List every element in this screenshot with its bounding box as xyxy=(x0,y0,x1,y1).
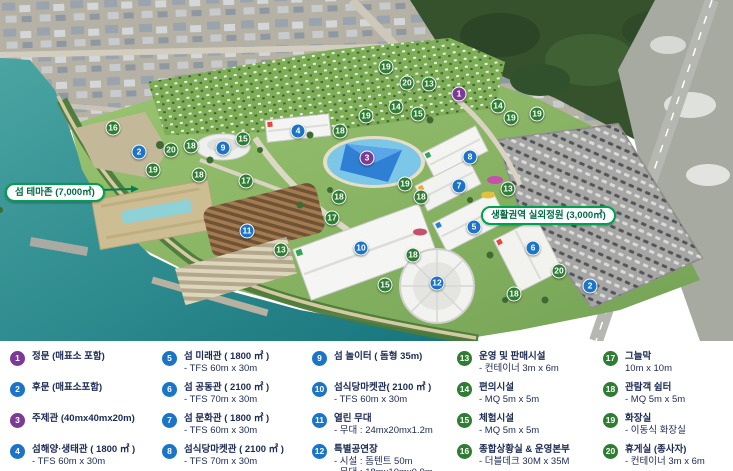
legend: 1정문 (매표소 포함)2후문 (매표소포함)3주제관 (40mx40mx20m… xyxy=(0,341,733,471)
map-marker-15[interactable]: 15 xyxy=(378,278,393,293)
legend-item-4: 4섬해양·생태관 ( 1800 ㎡ )- TFS 60m x 30m xyxy=(10,444,162,467)
map-marker-17[interactable]: 17 xyxy=(239,174,254,189)
legend-text-11: 열린 무대- 무대 : 24mx20mx1.2m xyxy=(334,413,433,436)
legend-text-17: 그늘막10m x 10m xyxy=(625,351,672,374)
legend-item-1: 1정문 (매표소 포함) xyxy=(10,351,162,366)
legend-text-12: 특별공연장- 시설 : 돔텐트 50m- 무대 : 18mx10mx0.9m xyxy=(334,444,433,471)
legend-text-4: 섬해양·생태관 ( 1800 ㎡ )- TFS 60m x 30m xyxy=(32,444,135,467)
map-marker-15[interactable]: 15 xyxy=(411,107,426,122)
legend-badge-13: 13 xyxy=(457,351,472,366)
legend-text-16: 종합상황실 & 운영본부- 더블데크 30M x 35M xyxy=(479,444,570,467)
map-marker-19[interactable]: 19 xyxy=(530,107,545,122)
aerial-photo xyxy=(0,0,733,341)
legend-item-17: 17그늘막10m x 10m xyxy=(603,351,733,374)
legend-text-5: 섬 미래관 ( 1800 ㎡ )- TFS 60m x 30m xyxy=(184,351,269,374)
map-marker-10[interactable]: 10 xyxy=(354,241,369,256)
legend-text-14: 편의시설- MQ 5m x 5m xyxy=(479,382,539,405)
legend-item-16: 16종합상황실 & 운영본부- 더블데크 30M x 35M xyxy=(457,444,603,467)
legend-item-5: 5섬 미래관 ( 1800 ㎡ )- TFS 60m x 30m xyxy=(162,351,312,374)
map-marker-19[interactable]: 19 xyxy=(379,60,394,75)
map-marker-7[interactable]: 7 xyxy=(452,179,467,194)
map-marker-18[interactable]: 18 xyxy=(192,168,207,183)
map-marker-18[interactable]: 18 xyxy=(414,190,429,205)
legend-text-7: 섬 문화관 ( 1800 ㎡ )- TFS 60m x 30m xyxy=(184,413,269,436)
map-marker-19[interactable]: 19 xyxy=(146,163,161,178)
map-marker-18[interactable]: 18 xyxy=(184,139,199,154)
map-marker-12[interactable]: 12 xyxy=(430,276,445,291)
legend-badge-9: 9 xyxy=(312,351,327,366)
legend-text-6: 섬 공동관 ( 2100 ㎡ )- TFS 70m x 30m xyxy=(184,382,269,405)
legend-badge-20: 20 xyxy=(603,444,618,459)
legend-item-9: 9섬 놀이터 ( 돔형 35m) xyxy=(312,351,457,366)
legend-text-10: 섬식당마켓관( 2100 ㎡ )- TFS 60m x 30m xyxy=(334,382,431,405)
map-marker-14[interactable]: 14 xyxy=(491,99,506,114)
legend-badge-1: 1 xyxy=(10,351,25,366)
legend-badge-19: 19 xyxy=(603,413,618,428)
legend-text-15: 체험시설- MQ 5m x 5m xyxy=(479,413,539,436)
map-marker-3[interactable]: 3 xyxy=(360,151,375,166)
legend-item-15: 15체험시설- MQ 5m x 5m xyxy=(457,413,603,436)
legend-item-11: 11열린 무대- 무대 : 24mx20mx1.2m xyxy=(312,413,457,436)
map-marker-13[interactable]: 13 xyxy=(422,77,437,92)
map-marker-20[interactable]: 20 xyxy=(164,143,179,158)
map-marker-13[interactable]: 13 xyxy=(274,243,289,258)
legend-badge-3: 3 xyxy=(10,413,25,428)
legend-item-6: 6섬 공동관 ( 2100 ㎡ )- TFS 70m x 30m xyxy=(162,382,312,405)
map-marker-6[interactable]: 6 xyxy=(526,241,541,256)
legend-badge-7: 7 xyxy=(162,413,177,428)
map-marker-11[interactable]: 11 xyxy=(240,224,255,239)
legend-text-20: 휴게실 (종사자)- 컨테이너 3m x 6m xyxy=(625,444,705,467)
legend-badge-15: 15 xyxy=(457,413,472,428)
legend-item-3: 3주제관 (40mx40mx20m) xyxy=(10,413,162,428)
legend-badge-5: 5 xyxy=(162,351,177,366)
label-theme-zone: 섬 테마존 (7,000㎡) xyxy=(5,183,105,202)
map-marker-8[interactable]: 8 xyxy=(463,150,478,165)
legend-column-1: 1정문 (매표소 포함)2후문 (매표소포함)3주제관 (40mx40mx20m… xyxy=(10,351,162,471)
screenshot: 섬 테마존 (7,000㎡) 생활권역 실외정원 (3,000㎡) 132245… xyxy=(0,0,733,471)
legend-item-8: 8섬식당마켓관 ( 2100 ㎡ )- TFS 70m x 30m xyxy=(162,444,312,467)
legend-badge-14: 14 xyxy=(457,382,472,397)
legend-item-10: 10섬식당마켓관( 2100 ㎡ )- TFS 60m x 30m xyxy=(312,382,457,405)
map-marker-20[interactable]: 20 xyxy=(400,76,415,91)
legend-badge-4: 4 xyxy=(10,444,25,459)
legend-column-4: 13운영 및 판매시설- 컨테이너 3m x 6m14편의시설- MQ 5m x… xyxy=(457,351,603,471)
legend-text-9: 섬 놀이터 ( 돔형 35m) xyxy=(334,351,422,363)
map-marker-19[interactable]: 19 xyxy=(504,111,519,126)
map-marker-16[interactable]: 16 xyxy=(106,121,121,136)
legend-badge-12: 12 xyxy=(312,444,327,459)
legend-text-1: 정문 (매표소 포함) xyxy=(32,351,105,363)
legend-item-2: 2후문 (매표소포함) xyxy=(10,382,162,397)
legend-text-8: 섬식당마켓관 ( 2100 ㎡ )- TFS 70m x 30m xyxy=(184,444,284,467)
map-marker-1[interactable]: 1 xyxy=(452,87,467,102)
map-marker-17[interactable]: 17 xyxy=(325,211,340,226)
legend-badge-18: 18 xyxy=(603,382,618,397)
legend-text-18: 관람객 쉼터- MQ 5m x 5m xyxy=(625,382,685,405)
legend-badge-2: 2 xyxy=(10,382,25,397)
map-marker-20[interactable]: 20 xyxy=(552,264,567,279)
legend-badge-6: 6 xyxy=(162,382,177,397)
map-marker-19[interactable]: 19 xyxy=(398,177,413,192)
legend-item-7: 7섬 문화관 ( 1800 ㎡ )- TFS 60m x 30m xyxy=(162,413,312,436)
legend-text-13: 운영 및 판매시설- 컨테이너 3m x 6m xyxy=(479,351,559,374)
legend-column-5: 17그늘막10m x 10m18관람객 쉼터- MQ 5m x 5m19화장실-… xyxy=(603,351,733,471)
map-marker-14[interactable]: 14 xyxy=(389,100,404,115)
legend-badge-11: 11 xyxy=(312,413,327,428)
map-marker-2[interactable]: 2 xyxy=(583,279,598,294)
map-marker-18[interactable]: 18 xyxy=(333,124,348,139)
legend-badge-17: 17 xyxy=(603,351,618,366)
legend-text-3: 주제관 (40mx40mx20m) xyxy=(32,413,135,425)
legend-item-18: 18관람객 쉼터- MQ 5m x 5m xyxy=(603,382,733,405)
legend-item-19: 19화장실- 이동식 화장실 xyxy=(603,413,733,436)
legend-column-3: 9섬 놀이터 ( 돔형 35m)10섬식당마켓관( 2100 ㎡ )- TFS … xyxy=(312,351,457,471)
legend-badge-16: 16 xyxy=(457,444,472,459)
legend-badge-10: 10 xyxy=(312,382,327,397)
map-marker-13[interactable]: 13 xyxy=(501,182,516,197)
map-marker-19[interactable]: 19 xyxy=(359,109,374,124)
map-marker-18[interactable]: 18 xyxy=(406,248,421,263)
map-marker-9[interactable]: 9 xyxy=(216,141,231,156)
legend-item-14: 14편의시설- MQ 5m x 5m xyxy=(457,382,603,405)
legend-column-2: 5섬 미래관 ( 1800 ㎡ )- TFS 60m x 30m6섬 공동관 (… xyxy=(162,351,312,471)
map-marker-5[interactable]: 5 xyxy=(467,220,482,235)
legend-item-12: 12특별공연장- 시설 : 돔텐트 50m- 무대 : 18mx10mx0.9m xyxy=(312,444,457,471)
map-marker-15[interactable]: 15 xyxy=(236,132,251,147)
map-marker-18[interactable]: 18 xyxy=(507,287,522,302)
legend-text-2: 후문 (매표소포함) xyxy=(32,382,102,394)
map-marker-18[interactable]: 18 xyxy=(332,190,347,205)
map-marker-2[interactable]: 2 xyxy=(132,145,147,160)
map-marker-4[interactable]: 4 xyxy=(291,124,306,139)
legend-badge-8: 8 xyxy=(162,444,177,459)
legend-item-13: 13운영 및 판매시설- 컨테이너 3m x 6m xyxy=(457,351,603,374)
label-outdoor-garden: 생활권역 실외정원 (3,000㎡) xyxy=(481,206,616,225)
site-map: 섬 테마존 (7,000㎡) 생활권역 실외정원 (3,000㎡) 132245… xyxy=(0,0,733,341)
legend-item-20: 20휴게실 (종사자)- 컨테이너 3m x 6m xyxy=(603,444,733,467)
legend-text-19: 화장실- 이동식 화장실 xyxy=(625,413,686,436)
